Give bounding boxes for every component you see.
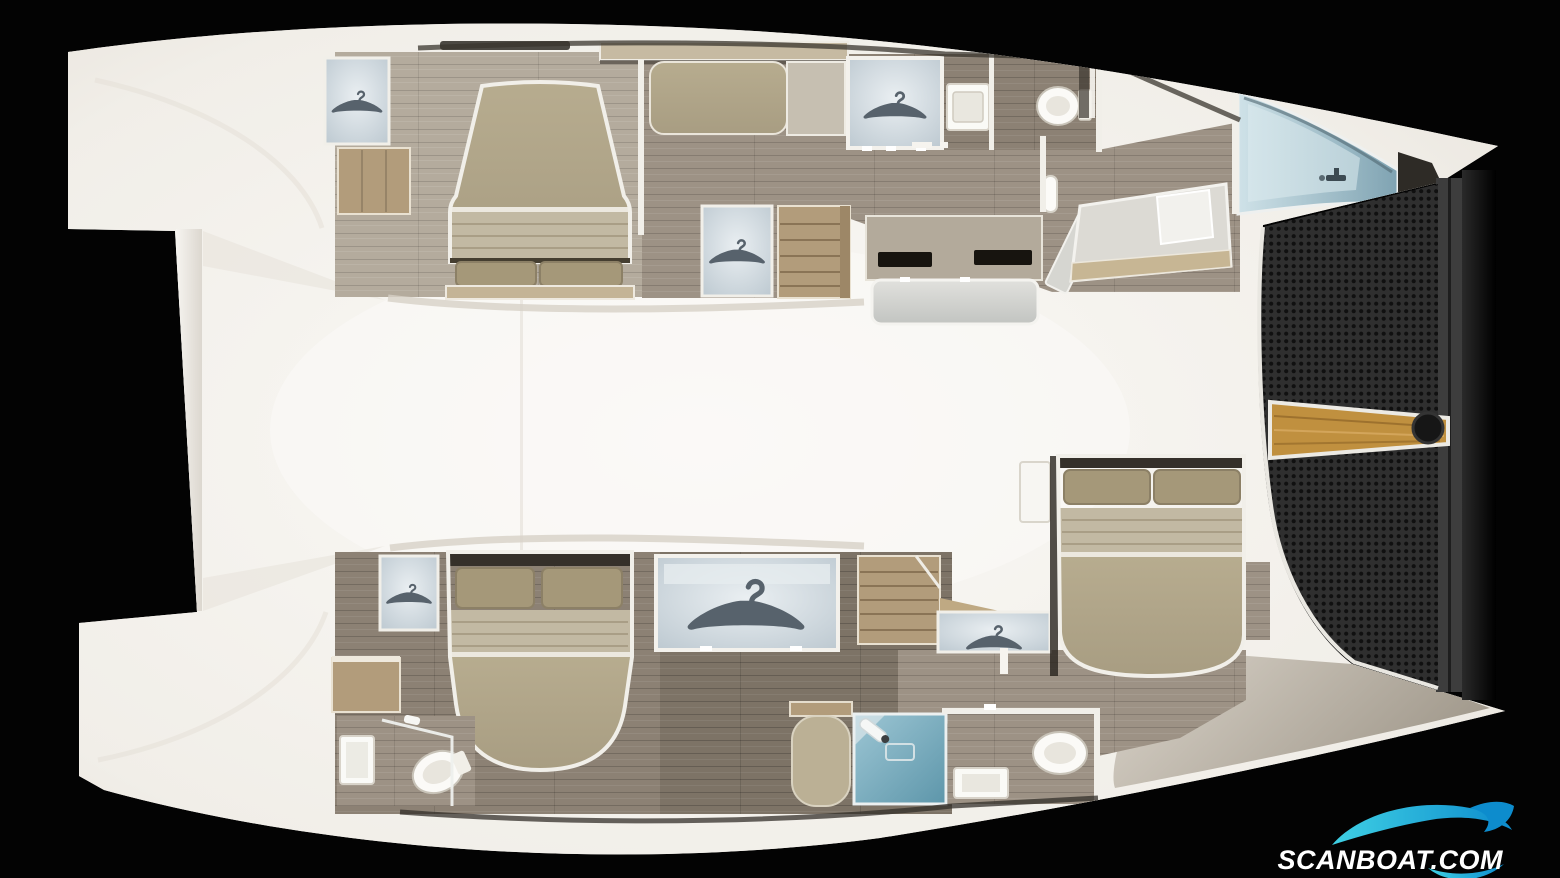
starboard-forward-floor-patch [1246,562,1270,640]
starboard-forward-toilet-room [942,704,1100,806]
pillow [456,568,534,608]
hatch-frame [1232,92,1239,214]
bed-base-board [446,286,634,299]
door-track [940,142,948,148]
forward-bulkhead [1040,136,1046,212]
starboard-aft-wardrobe [380,556,438,630]
starboard-forward-double-bed [1020,454,1244,676]
starboard-corridor-wardrobe [938,612,1050,652]
cabin-bulkhead [638,60,644,235]
port-forward-desk [866,216,1042,280]
port-aft-wardrobe [325,58,389,144]
desk-niche [878,252,932,267]
port-drawer-chest [338,148,410,214]
port-shower-cabin [848,58,942,151]
door-jamb [1090,66,1095,118]
door-track [984,704,996,710]
catamaran-floorplan-screenshot: SCANBOAT.COM [0,0,1560,878]
deck-plan-rendering: SCANBOAT.COM [0,0,1560,878]
port-companionway-stairs [778,206,850,298]
nightstand [1020,462,1050,522]
starboard-shower-cabin [656,556,838,651]
starboard-companionway-stairs [858,556,940,644]
port-aft-double-bed [446,82,634,299]
port-corridor-wardrobe [702,206,772,296]
door-track [912,142,932,148]
pillow [542,568,622,608]
port-bench-seat [872,277,1038,324]
pillow [1154,470,1240,504]
pillow [456,262,536,286]
port-settee [650,62,845,135]
pillow [1064,470,1150,504]
doorway-opening [1079,66,1089,118]
bow-fade [1462,170,1496,700]
starboard-vanity-chest [332,656,400,712]
pillow [540,262,622,286]
door-jamb [1000,648,1008,674]
desk-niche [974,250,1032,265]
pillow [1157,190,1213,244]
starboard-aft-bathroom [337,714,475,806]
starboard-teal-shower-room [854,714,946,804]
anchor-roller-fitting [1413,413,1443,443]
watermark-text: SCANBOAT.COM [1278,845,1503,875]
port-washbasin [947,84,989,130]
